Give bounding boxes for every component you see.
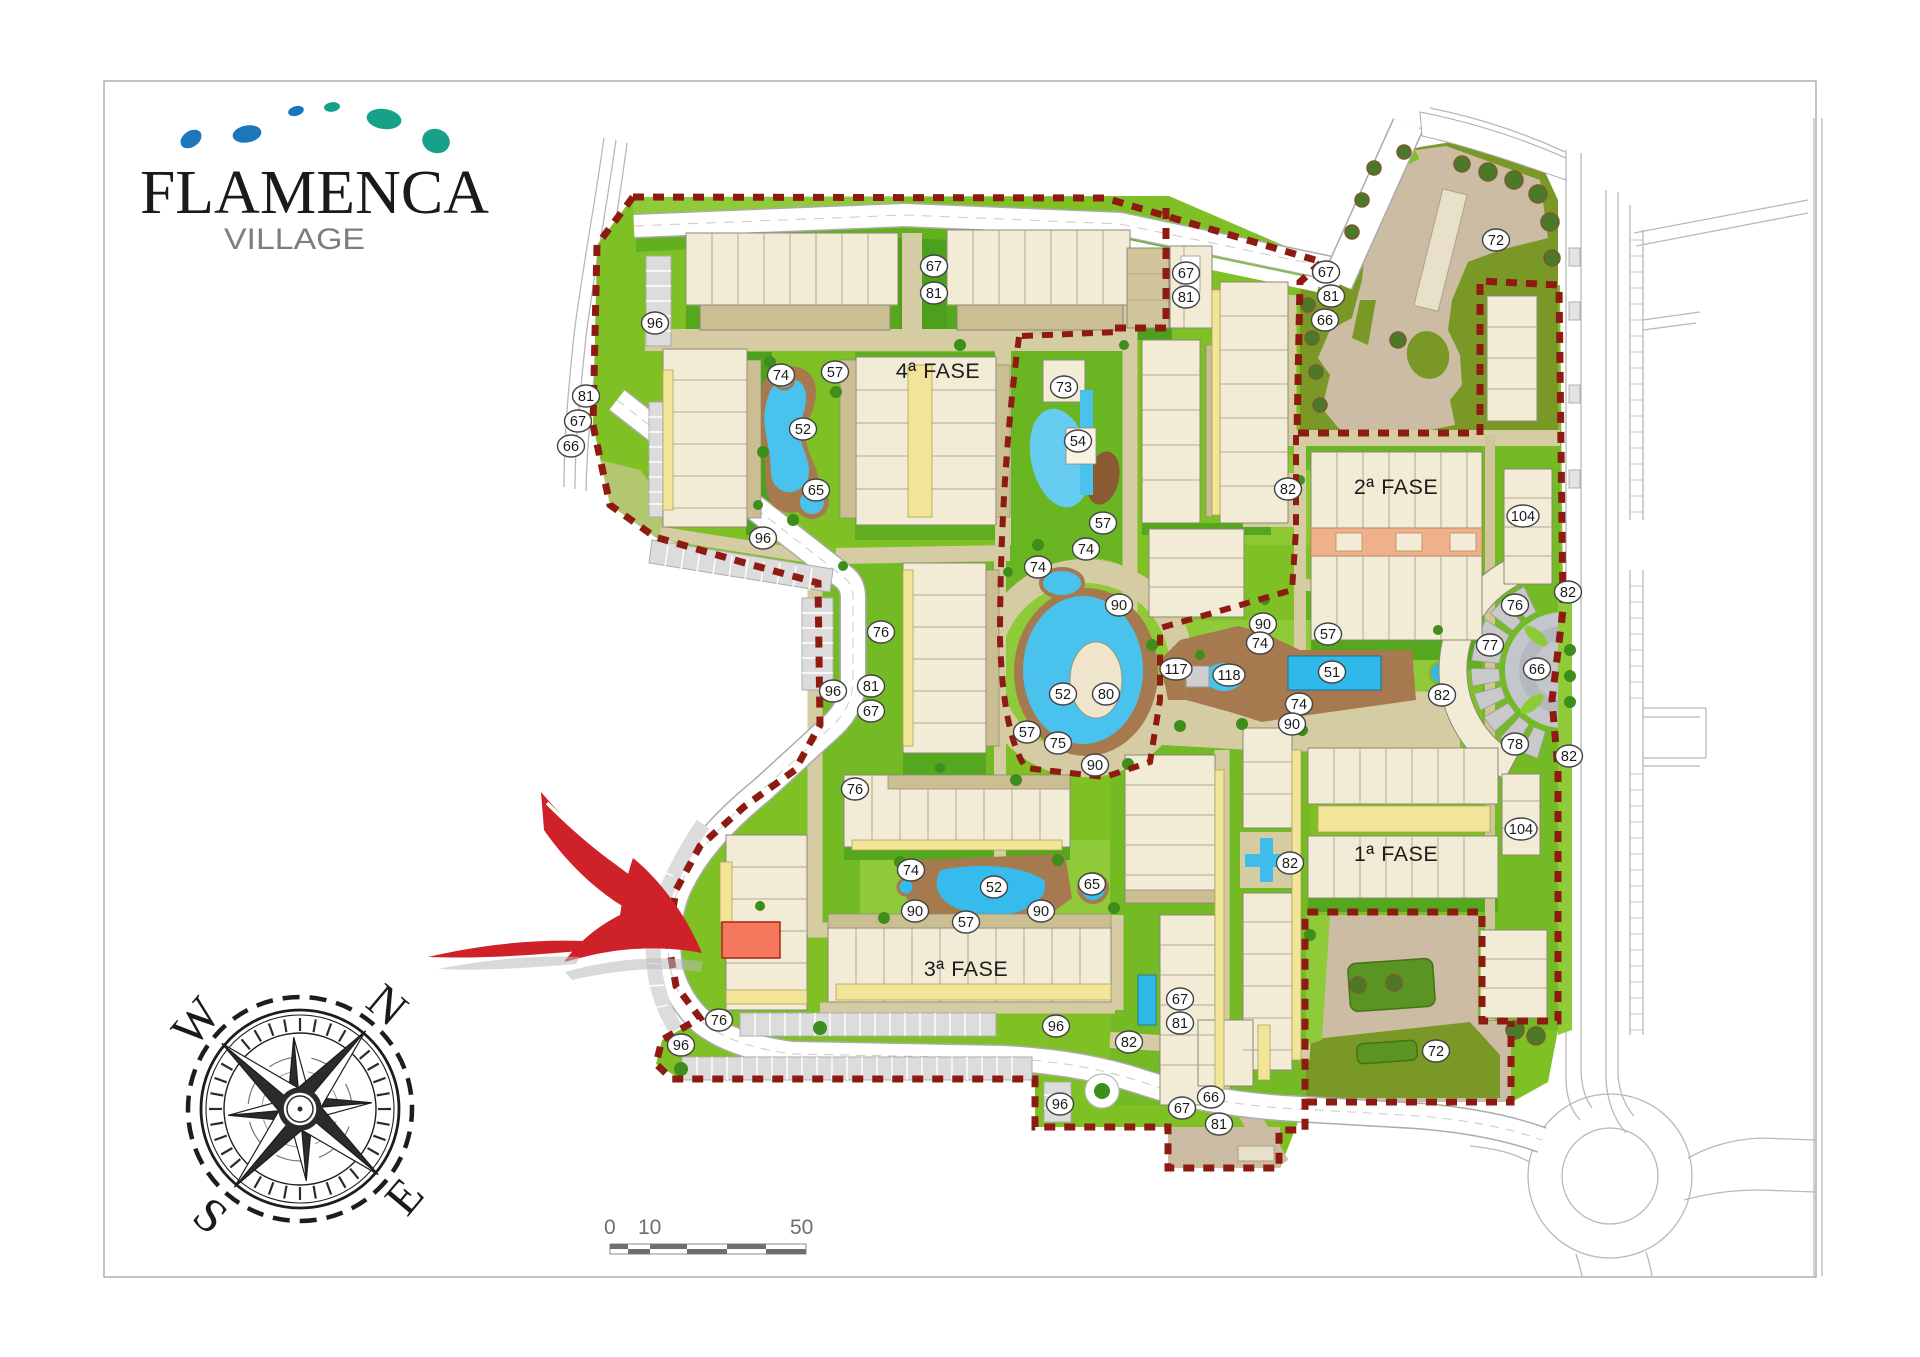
svg-text:67: 67 [1172,992,1188,1008]
svg-text:50: 50 [790,1216,813,1239]
svg-text:65: 65 [1084,877,1100,893]
svg-text:57: 57 [1320,627,1336,643]
svg-text:74: 74 [1030,560,1046,576]
svg-text:FLAMENCA: FLAMENCA [140,159,489,227]
svg-text:66: 66 [563,439,579,455]
svg-text:80: 80 [1098,687,1114,703]
svg-text:96: 96 [755,531,771,547]
svg-text:66: 66 [1203,1090,1219,1106]
svg-text:52: 52 [795,422,811,438]
svg-text:3ª FASE: 3ª FASE [924,957,1008,981]
svg-text:0: 0 [604,1216,616,1239]
svg-text:66: 66 [1317,313,1333,329]
svg-text:90: 90 [1033,904,1049,920]
svg-text:57: 57 [1095,516,1111,532]
svg-text:118: 118 [1217,668,1240,684]
svg-text:81: 81 [863,679,879,695]
svg-text:96: 96 [673,1038,689,1054]
svg-text:82: 82 [1560,585,1576,601]
svg-text:4ª FASE: 4ª FASE [896,359,980,383]
svg-text:75: 75 [1050,736,1066,752]
svg-text:78: 78 [1507,737,1523,753]
svg-text:1ª FASE: 1ª FASE [1354,842,1438,866]
svg-text:VILLAGE: VILLAGE [224,223,365,256]
svg-text:74: 74 [1252,636,1268,652]
svg-text:72: 72 [1488,233,1504,249]
svg-text:57: 57 [1019,725,1035,741]
svg-text:51: 51 [1324,665,1340,681]
svg-text:76: 76 [711,1013,727,1029]
svg-text:82: 82 [1121,1035,1137,1051]
svg-text:67: 67 [1174,1101,1190,1117]
svg-text:81: 81 [1178,290,1194,306]
svg-text:73: 73 [1056,380,1072,396]
svg-text:96: 96 [1052,1097,1068,1113]
svg-text:66: 66 [1529,662,1545,678]
svg-text:54: 54 [1070,434,1086,450]
svg-text:81: 81 [1323,289,1339,305]
svg-text:90: 90 [1087,758,1103,774]
svg-text:82: 82 [1280,482,1296,498]
svg-text:76: 76 [847,782,863,798]
svg-text:57: 57 [958,915,974,931]
svg-text:67: 67 [1178,266,1194,282]
svg-text:90: 90 [907,904,923,920]
svg-text:117: 117 [1164,662,1187,678]
svg-text:52: 52 [1055,687,1071,703]
svg-text:104: 104 [1509,822,1533,838]
svg-text:72: 72 [1428,1044,1444,1060]
svg-text:74: 74 [773,368,789,384]
svg-text:90: 90 [1255,617,1271,633]
svg-text:81: 81 [926,286,942,302]
svg-text:81: 81 [1172,1016,1188,1032]
svg-text:81: 81 [578,389,594,405]
svg-text:67: 67 [1318,265,1334,281]
svg-text:81: 81 [1211,1117,1227,1133]
svg-text:77: 77 [1482,638,1498,654]
svg-text:57: 57 [827,365,843,381]
svg-text:90: 90 [1284,717,1300,733]
svg-text:65: 65 [808,483,824,499]
svg-text:67: 67 [926,259,942,275]
svg-text:67: 67 [570,414,586,430]
svg-text:96: 96 [1048,1019,1064,1035]
svg-text:82: 82 [1434,688,1450,704]
svg-text:82: 82 [1561,749,1577,765]
svg-text:74: 74 [1078,542,1094,558]
svg-text:76: 76 [1507,598,1523,614]
svg-text:74: 74 [1291,697,1307,713]
svg-text:104: 104 [1511,509,1535,525]
svg-text:52: 52 [986,880,1002,896]
svg-text:96: 96 [647,316,663,332]
svg-text:76: 76 [873,625,889,641]
svg-text:2ª FASE: 2ª FASE [1354,475,1438,499]
svg-text:90: 90 [1111,598,1127,614]
svg-text:96: 96 [825,684,841,700]
svg-text:74: 74 [903,863,919,879]
svg-text:67: 67 [863,704,879,720]
svg-text:82: 82 [1282,856,1298,872]
svg-text:10: 10 [638,1216,661,1239]
